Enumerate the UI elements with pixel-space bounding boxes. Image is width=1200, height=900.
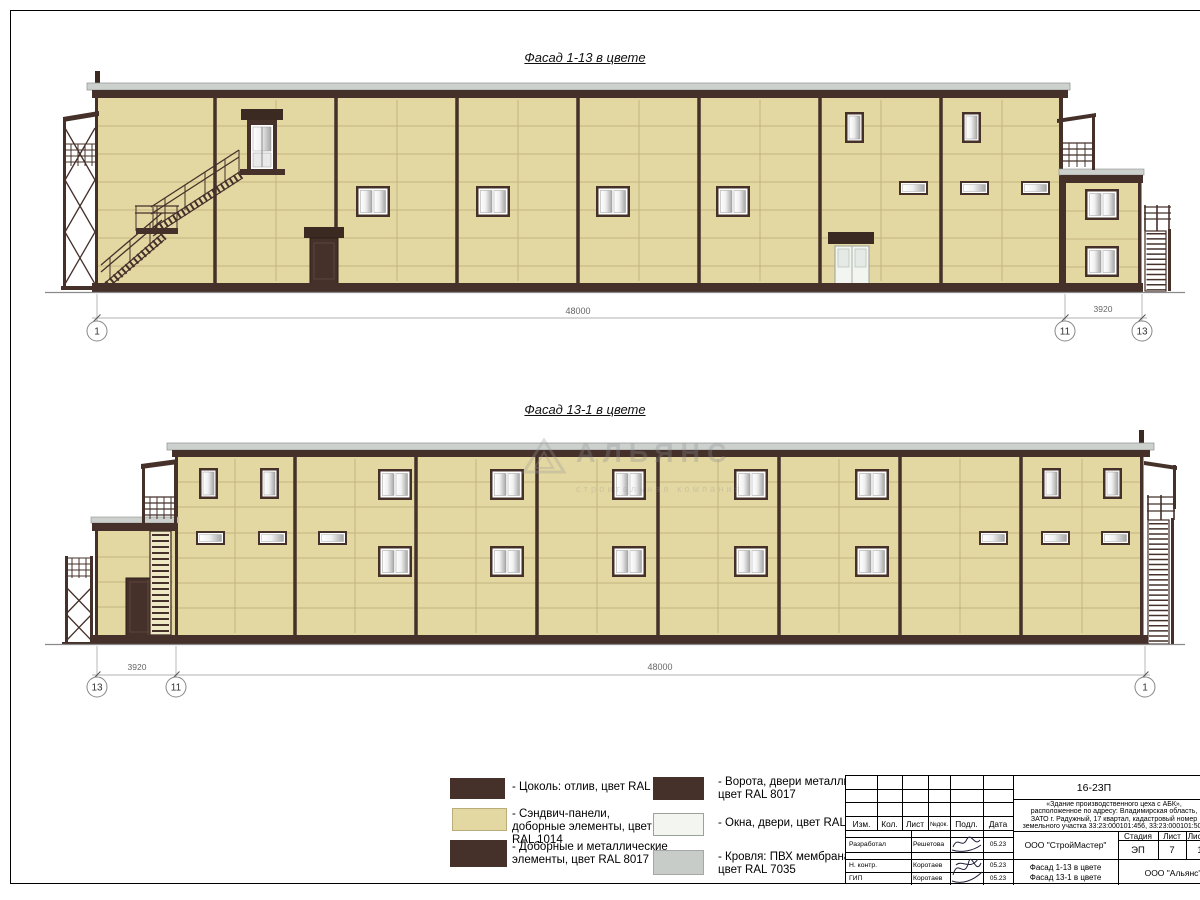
tb-drawing-title-line: Фасад 1-13 в цвете <box>1030 863 1102 872</box>
window-vertical <box>1042 468 1061 499</box>
tb-name: Решетова <box>913 841 949 848</box>
window-double <box>378 469 412 500</box>
legend-swatch-plinth <box>450 778 505 799</box>
tb-line <box>911 830 912 885</box>
facade1-dimensions: 48000 3920 1 11 13 <box>87 294 1152 341</box>
facade2-drawing: 3920 48000 13 11 1 <box>45 430 1185 697</box>
tb-name: Коротаев <box>913 875 949 882</box>
tb-doc-number: 16-23П <box>1013 782 1175 794</box>
window-small <box>1041 531 1070 545</box>
window-double <box>490 469 524 500</box>
axis-marker: 1 <box>94 327 100 338</box>
window-double <box>1085 246 1119 277</box>
tb-project-line: земельного участка 33:23:000101:456, 33:… <box>1023 823 1200 830</box>
window-small <box>979 531 1008 545</box>
tb-project-line: «Здание производственного цеха с АБК», <box>1046 801 1182 808</box>
tb-role: ГИП <box>849 875 909 882</box>
wall-ladder <box>150 531 171 635</box>
tb-org-client: ООО "Альянс" <box>1118 868 1200 878</box>
tb-date: 05.23 <box>983 862 1013 869</box>
window-vertical <box>199 468 218 499</box>
roof-fascia <box>172 450 1150 457</box>
tb-project-desc: «Здание производственного цеха с АБК», р… <box>1018 801 1200 831</box>
entrance-door <box>828 232 874 284</box>
window-small <box>960 181 989 195</box>
window-double <box>378 546 412 577</box>
legend-swatch-elements <box>450 840 507 867</box>
roof-membrane <box>87 83 1070 90</box>
window-small <box>318 531 347 545</box>
tb-col-podp: Подл. <box>950 819 983 829</box>
window-double <box>1085 189 1119 220</box>
window-double <box>612 469 646 500</box>
tb-sheets-label: Листов <box>1186 832 1200 841</box>
tb-sheet-value: 7 <box>1158 845 1186 856</box>
window-double <box>716 186 750 217</box>
window-double <box>734 469 768 500</box>
window-small <box>1101 531 1130 545</box>
window-vertical <box>260 468 279 499</box>
window-double <box>476 186 510 217</box>
facade2-dimensions: 3920 48000 13 11 1 <box>87 646 1155 697</box>
tb-line <box>1013 799 1200 800</box>
tb-sheets-value: 1 <box>1186 845 1200 856</box>
tb-sheet-label: Лист <box>1158 832 1186 841</box>
tb-col-izm: Изм. <box>846 819 877 829</box>
legend-swatch-panels <box>452 808 507 831</box>
signature-icon <box>950 855 983 885</box>
tb-line <box>846 830 1013 831</box>
axis-marker: 13 <box>91 683 103 694</box>
tb-line <box>846 859 1013 860</box>
drawing-sheet: Фасад 1-13 в цвете Фасад 13-1 в цвете <box>0 0 1200 900</box>
axis-marker: 11 <box>171 683 182 694</box>
dim-3920: 3920 <box>1094 304 1113 314</box>
plinth <box>92 283 1143 292</box>
dim-3920: 3920 <box>128 662 147 672</box>
tb-line <box>846 837 1013 838</box>
tb-col-ndok: №док. <box>928 821 950 828</box>
tb-stage-label: Стадия <box>1118 832 1158 841</box>
tb-line <box>846 816 1013 817</box>
legend-swatch-windows <box>653 813 704 836</box>
tb-date: 05.23 <box>983 841 1013 848</box>
tb-role: Н. контр. <box>849 862 909 869</box>
window-small <box>196 531 225 545</box>
annex-block <box>1059 169 1144 283</box>
window-double <box>855 546 889 577</box>
platform-structure <box>62 556 96 645</box>
edge-column <box>1140 457 1144 635</box>
tb-line <box>1013 859 1200 860</box>
dim-48000: 48000 <box>647 662 672 672</box>
facade1-drawing: 48000 3920 1 11 13 <box>45 71 1185 341</box>
legend-swatch-gates <box>653 777 704 800</box>
window-small <box>899 181 928 195</box>
dim-48000: 48000 <box>565 306 590 316</box>
window-small <box>258 531 287 545</box>
title-block: Изм. Кол. Лист №док. Подл. Дата Разработ… <box>845 775 1200 884</box>
annex-block <box>91 517 178 636</box>
axis-marker: 13 <box>1136 327 1148 338</box>
tb-col-data: Дата <box>983 819 1013 829</box>
tb-name: Коротаев <box>913 862 949 869</box>
window-vertical <box>845 112 864 143</box>
plinth <box>91 635 1152 644</box>
roof-membrane <box>167 443 1154 450</box>
tb-line <box>846 852 1013 853</box>
tb-role: Разработал <box>849 841 909 848</box>
edge-column <box>1059 98 1063 283</box>
axis-marker: 11 <box>1060 327 1071 338</box>
exterior-ladder <box>1144 461 1177 645</box>
tb-stage-value: ЭП <box>1118 845 1158 856</box>
tb-line <box>846 802 1013 803</box>
facade-drawings: 48000 3920 1 11 13 <box>0 0 1200 710</box>
tb-date: 05.23 <box>983 875 1013 882</box>
metal-door <box>304 227 344 284</box>
tb-drawing-title-line: Фасад 13-1 в цвете <box>1030 873 1102 882</box>
tb-line <box>846 872 1013 873</box>
window-small <box>1021 181 1050 195</box>
tb-org-designer: ООО "СтройМастер" <box>1013 840 1118 850</box>
window-vertical <box>1103 468 1122 499</box>
window-double <box>734 546 768 577</box>
window-double <box>855 469 889 500</box>
tb-col-kol: Кол. <box>877 819 902 829</box>
window-double <box>356 186 390 217</box>
axis-marker: 1 <box>1142 683 1148 694</box>
exterior-ladder <box>1144 205 1171 291</box>
window-double <box>596 186 630 217</box>
legend-swatch-roof <box>653 850 704 875</box>
window-double <box>490 546 524 577</box>
tb-line <box>846 789 1013 790</box>
tb-col-list: Лист <box>902 819 928 829</box>
window-double <box>612 546 646 577</box>
stair-door <box>241 109 283 173</box>
tb-drawing-title: Фасад 1-13 в цвете Фасад 13-1 в цвете <box>1013 863 1118 882</box>
signature-icon <box>951 833 982 853</box>
window-vertical <box>962 112 981 143</box>
tb-project-line: ЗАТО г. Радужный, 17 квартал, кадастровы… <box>1031 816 1197 823</box>
roof-fascia <box>92 90 1068 98</box>
tb-project-line: расположенное по адресу: Владимирская об… <box>1031 808 1198 815</box>
edge-column <box>95 98 98 283</box>
